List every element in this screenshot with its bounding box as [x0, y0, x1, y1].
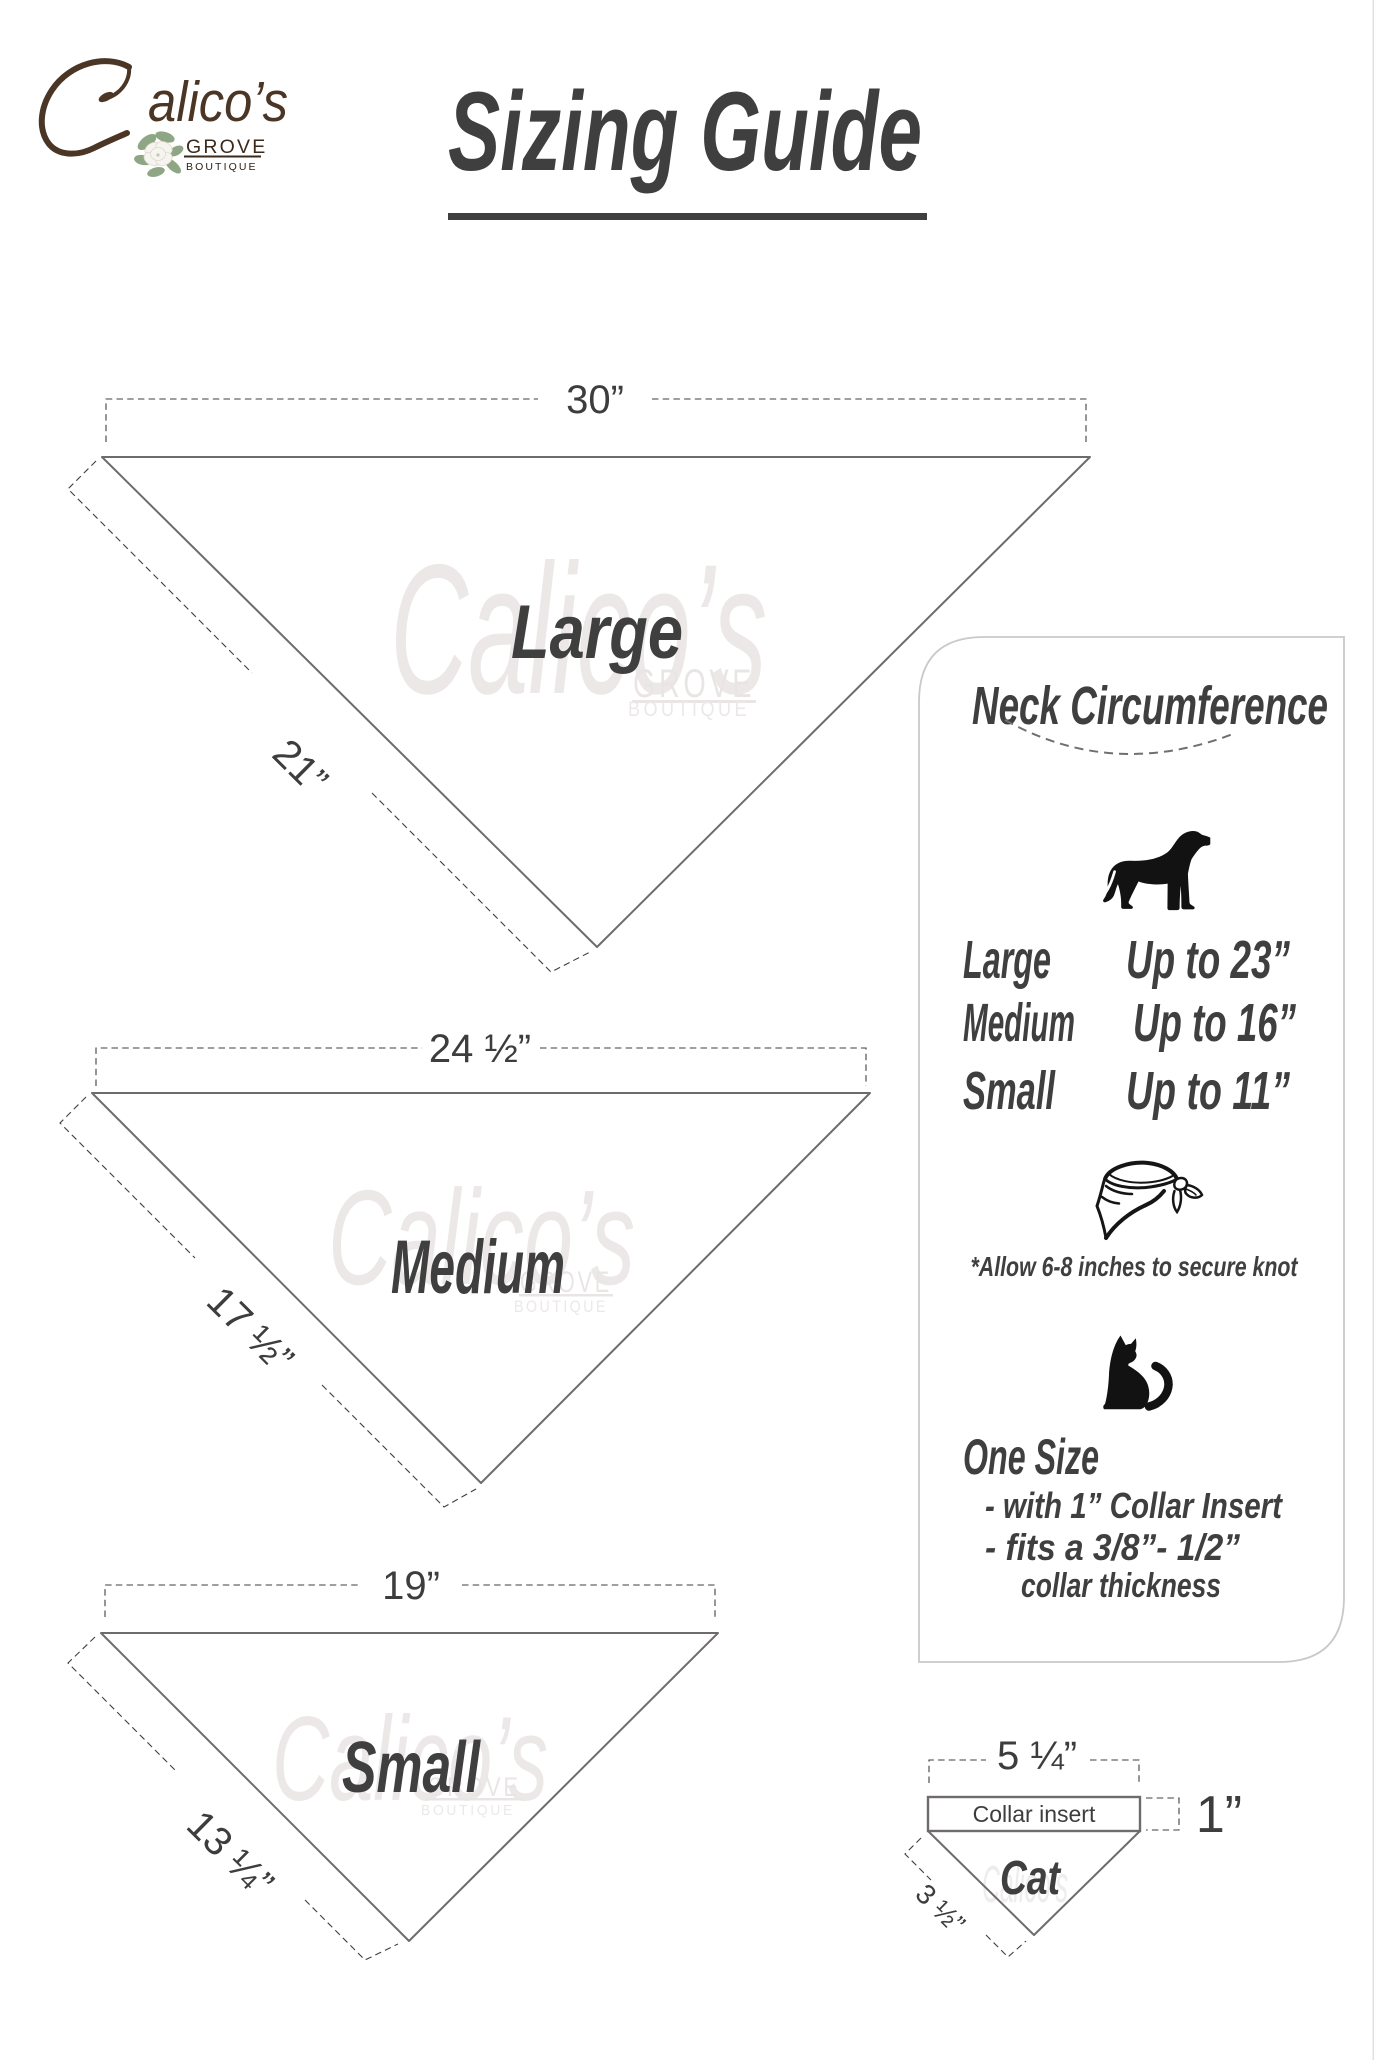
svg-text:BOUTIQUE: BOUTIQUE	[186, 161, 258, 173]
svg-text:- with 1” Collar Insert: - with 1” Collar Insert	[985, 1485, 1284, 1526]
svg-text:5 ¼”: 5 ¼”	[997, 1734, 1077, 1778]
svg-text:Neck Circumference: Neck Circumference	[972, 676, 1328, 736]
svg-text:BOUTIQUE: BOUTIQUE	[628, 698, 750, 721]
svg-text:Collar insert: Collar insert	[973, 1801, 1096, 1827]
svg-text:Large: Large	[511, 590, 683, 675]
svg-text:Sizing Guide: Sizing Guide	[448, 69, 922, 194]
svg-text:19”: 19”	[382, 1564, 440, 1608]
svg-text:Up to 16”: Up to 16”	[1133, 993, 1296, 1053]
svg-text:*Allow 6-8 inches to secure kn: *Allow 6-8 inches to secure knot	[971, 1251, 1299, 1282]
svg-text:24 ½”: 24 ½”	[429, 1027, 531, 1071]
svg-text:Up to 23”: Up to 23”	[1126, 930, 1290, 990]
svg-text:- fits a 3/8”- 1/2”: - fits a 3/8”- 1/2”	[985, 1527, 1240, 1568]
svg-text:collar thickness: collar thickness	[1021, 1567, 1221, 1605]
svg-text:One Size: One Size	[963, 1429, 1099, 1485]
svg-text:alico’s: alico’s	[148, 70, 288, 134]
svg-text:Medium: Medium	[391, 1225, 565, 1310]
svg-text:Up to 11”: Up to 11”	[1126, 1061, 1290, 1121]
svg-text:Large: Large	[963, 930, 1051, 990]
svg-text:Cat: Cat	[1000, 1852, 1062, 1905]
svg-text:30”: 30”	[566, 378, 624, 422]
svg-text:Medium: Medium	[963, 993, 1075, 1053]
svg-text:1”: 1”	[1196, 1786, 1242, 1844]
svg-text:GROVE: GROVE	[186, 136, 267, 158]
svg-text:Small: Small	[342, 1728, 481, 1808]
svg-text:Small: Small	[963, 1061, 1056, 1121]
